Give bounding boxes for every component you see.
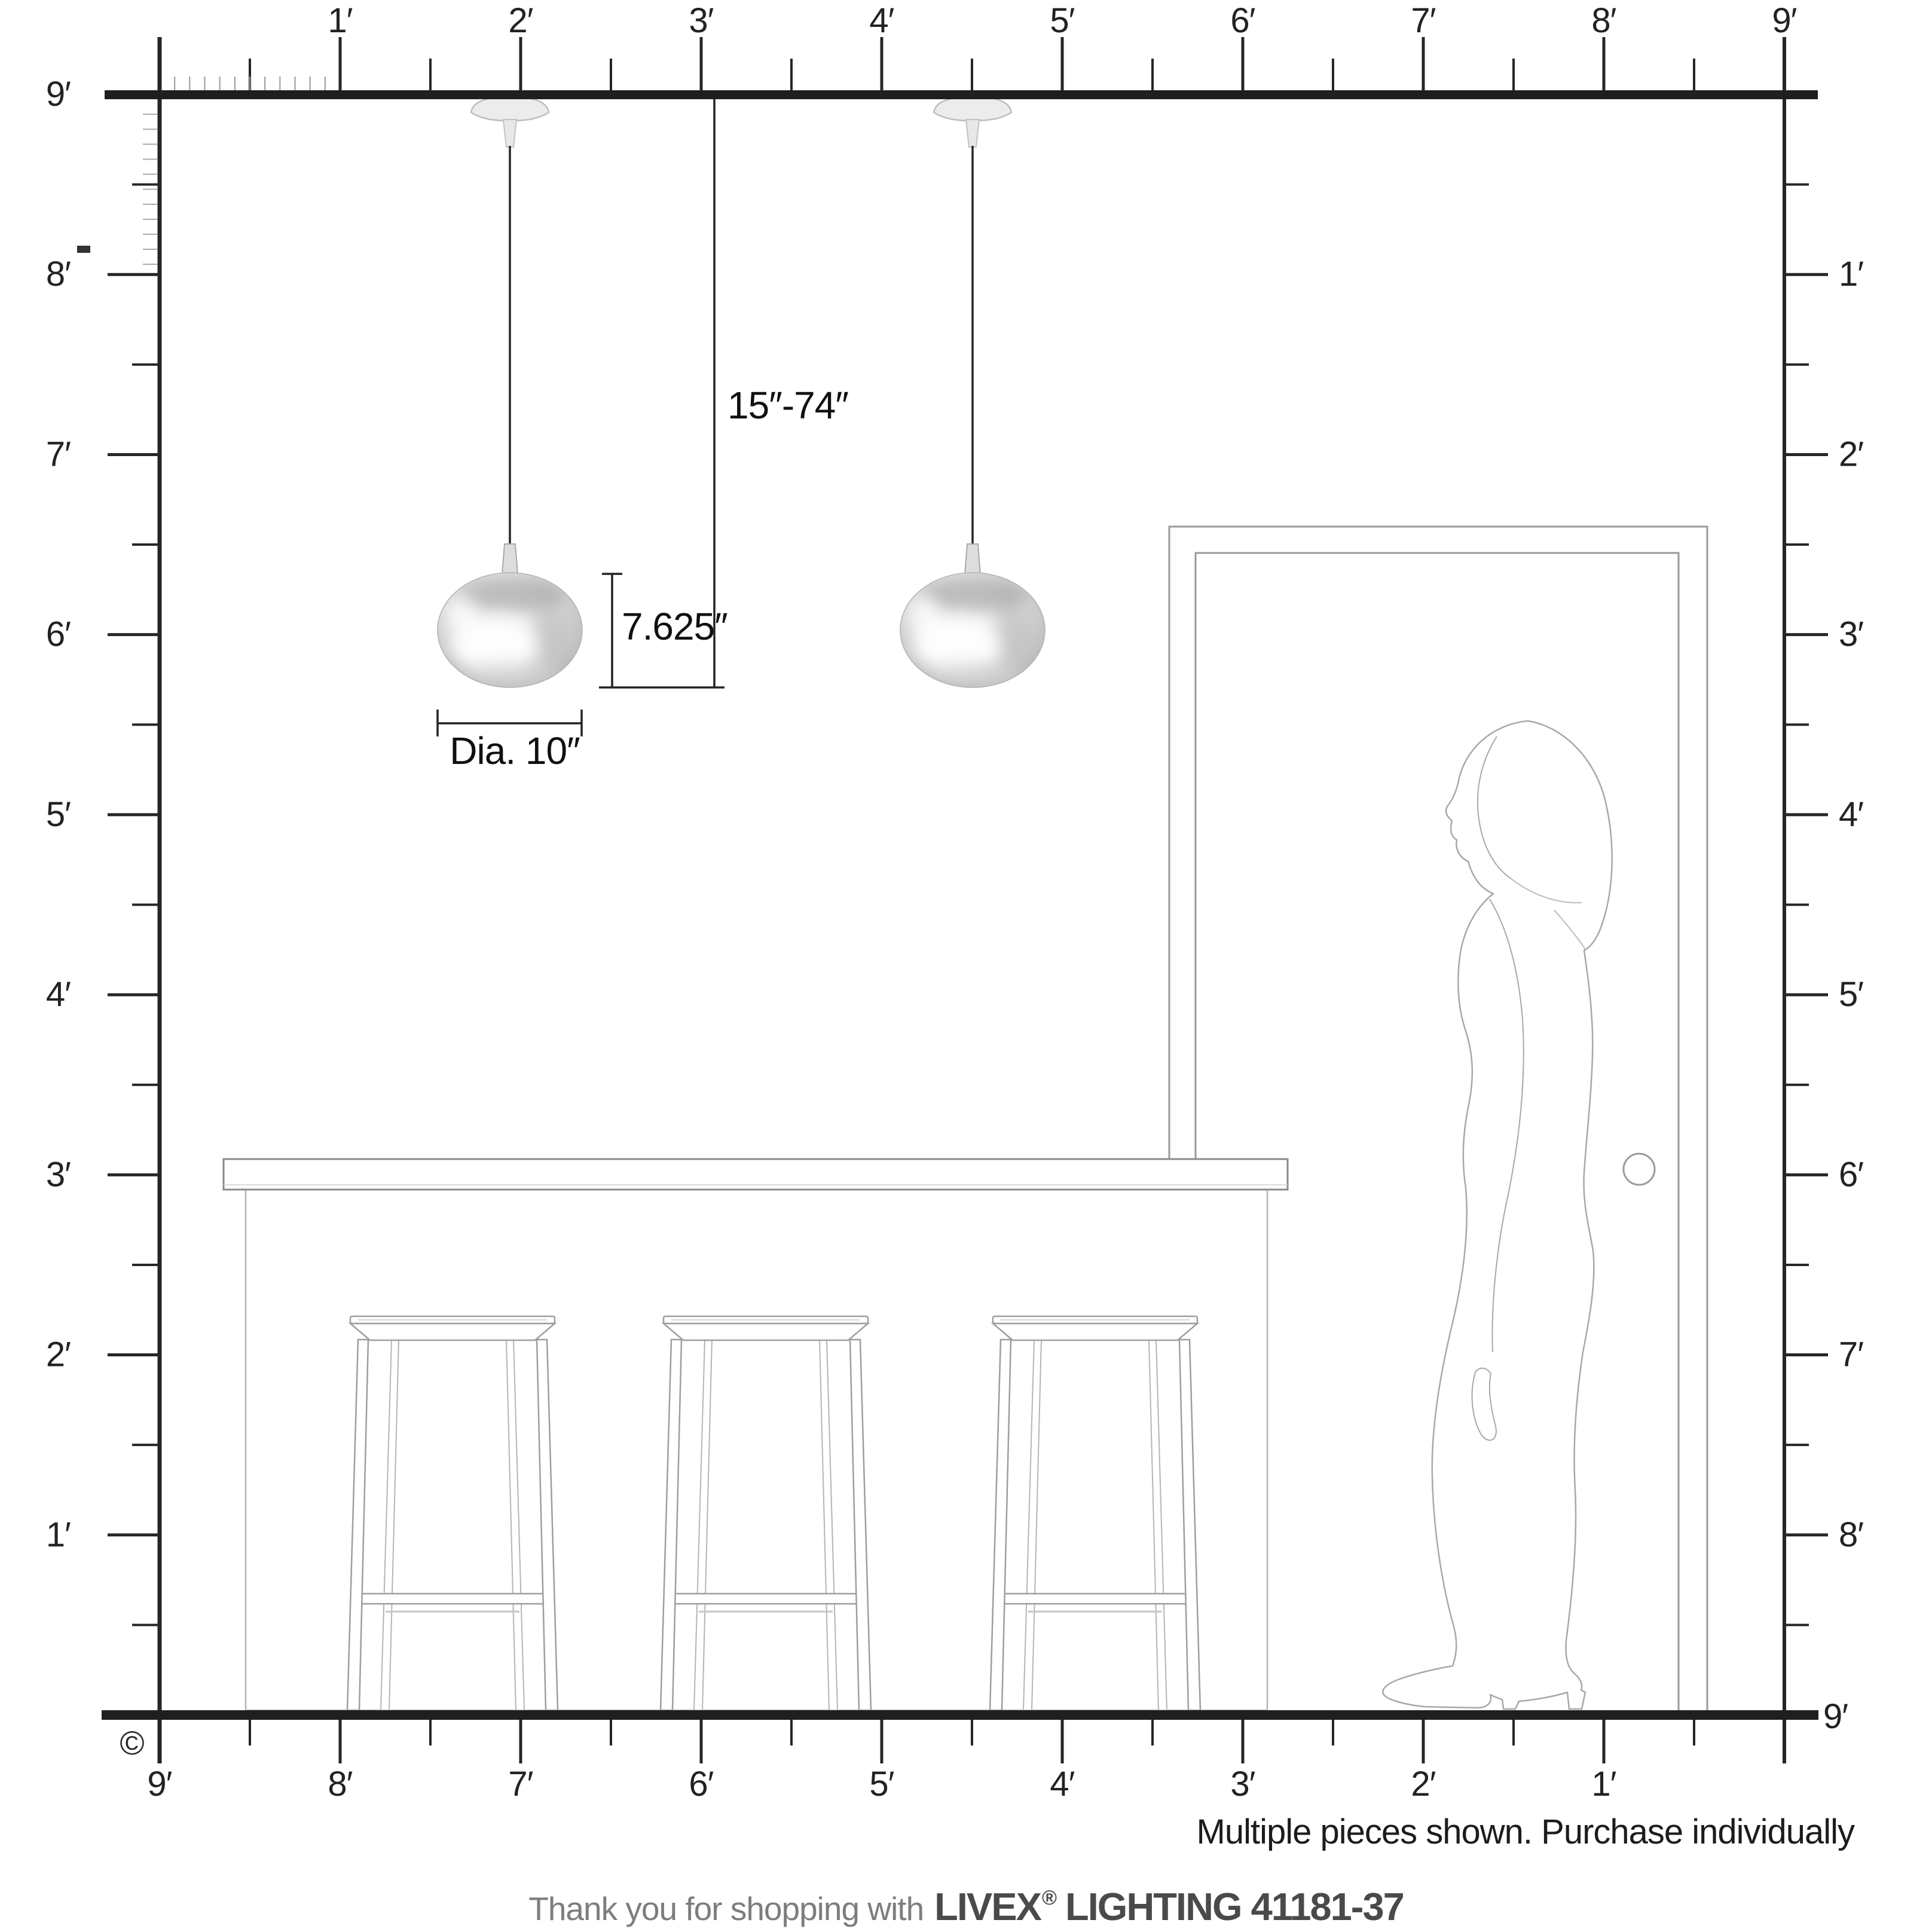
left-ruler-label: 5′ xyxy=(46,795,71,834)
ruler-mark xyxy=(77,246,90,253)
reflection-shade xyxy=(533,603,565,658)
stool-footrest xyxy=(1004,1594,1186,1604)
dim-diameter: Dia. 10″ xyxy=(450,729,580,772)
footer: Thank you for shopping withLIVEX®LIGHTIN… xyxy=(528,1885,1404,1928)
bottom-ruler-label: 8′ xyxy=(328,1765,352,1803)
left-ruler-label: 6′ xyxy=(46,615,71,654)
stool-footrest xyxy=(362,1594,543,1604)
stool-seat-skirt xyxy=(993,1323,1197,1340)
left-ruler-label: 7′ xyxy=(46,435,71,473)
footer-brand: LIVEX xyxy=(934,1885,1041,1928)
stool-seat-skirt xyxy=(350,1323,555,1340)
left-ruler-label: 2′ xyxy=(46,1335,71,1374)
pendant-canopy xyxy=(471,97,549,121)
island-body xyxy=(246,1190,1267,1710)
top-ruler-label: 3′ xyxy=(689,1,713,40)
stool-seat-skirt xyxy=(664,1323,868,1340)
footer-prefix: Thank you for shopping with xyxy=(528,1890,924,1927)
top-ruler-label: 7′ xyxy=(1411,1,1435,40)
right-ruler-label: 3′ xyxy=(1839,615,1863,654)
floor-bar xyxy=(102,1710,1818,1720)
bottom-ruler-label: 2′ xyxy=(1411,1765,1435,1803)
pendant-neck xyxy=(502,544,518,574)
top-ruler-label: 9′ xyxy=(1772,1,1796,40)
right-ruler-label: 4′ xyxy=(1839,795,1863,834)
top-ruler-label: 8′ xyxy=(1591,1,1616,40)
top-ruler-label: 2′ xyxy=(508,1,533,40)
bottom-ruler-label: 6′ xyxy=(689,1765,713,1803)
left-ruler-label: 8′ xyxy=(46,255,71,294)
bottom-ruler-label: 1′ xyxy=(1591,1765,1616,1803)
bottom-ruler-label: 7′ xyxy=(508,1765,533,1803)
footer-suffix: LIGHTING 41181-37 xyxy=(1065,1885,1404,1928)
reflection-light xyxy=(910,597,939,635)
scale-diagram-page: 1′2′3′4′5′6′7′8′9′9′1′2′3′4′5′6′7′8′1′2′… xyxy=(0,0,1932,1932)
copyright-symbol: © xyxy=(120,1724,144,1762)
stool-footrest xyxy=(675,1594,857,1604)
pendant-canopy xyxy=(934,97,1011,121)
pendant-canopy-stem xyxy=(966,120,979,147)
right-ruler-floor-label: 9′ xyxy=(1823,1697,1848,1736)
left-ruler-label: 4′ xyxy=(46,975,71,1014)
reflection-shade xyxy=(996,603,1028,658)
footer-registered-icon: ® xyxy=(1042,1887,1057,1909)
right-ruler-label: 5′ xyxy=(1839,975,1863,1014)
ceiling-bar xyxy=(105,90,1818,99)
left-ruler-label: 1′ xyxy=(46,1515,71,1554)
right-ruler-label: 2′ xyxy=(1839,435,1863,473)
right-ruler-label: 8′ xyxy=(1839,1515,1863,1554)
pendant-neck xyxy=(965,544,980,574)
top-ruler-label: 4′ xyxy=(869,1,894,40)
purchase-note: Multiple pieces shown. Purchase individu… xyxy=(1197,1812,1855,1851)
door-knob xyxy=(1624,1154,1655,1185)
right-ruler-label: 1′ xyxy=(1839,255,1863,294)
top-ruler-label: 5′ xyxy=(1050,1,1074,40)
bottom-ruler-label: 9′ xyxy=(147,1765,172,1803)
pendant-canopy-stem xyxy=(503,120,516,147)
bottom-ruler-label: 3′ xyxy=(1230,1765,1255,1803)
top-ruler-label: 6′ xyxy=(1230,1,1255,40)
room-scale-diagram: 1′2′3′4′5′6′7′8′9′9′1′2′3′4′5′6′7′8′1′2′… xyxy=(0,0,1932,1932)
top-ruler-label: 1′ xyxy=(328,1,352,40)
dim-suspension-range: 15″-74″ xyxy=(727,384,848,427)
bottom-ruler-label: 4′ xyxy=(1050,1765,1074,1803)
left-ruler-label: 3′ xyxy=(46,1155,71,1194)
right-ruler-label: 6′ xyxy=(1839,1155,1863,1194)
left-ruler-label: 9′ xyxy=(46,75,71,114)
bottom-ruler-label: 5′ xyxy=(869,1765,894,1803)
right-ruler-label: 7′ xyxy=(1839,1335,1863,1374)
reflection-light xyxy=(448,597,476,635)
dim-fixture-height: 7.625″ xyxy=(622,605,727,648)
